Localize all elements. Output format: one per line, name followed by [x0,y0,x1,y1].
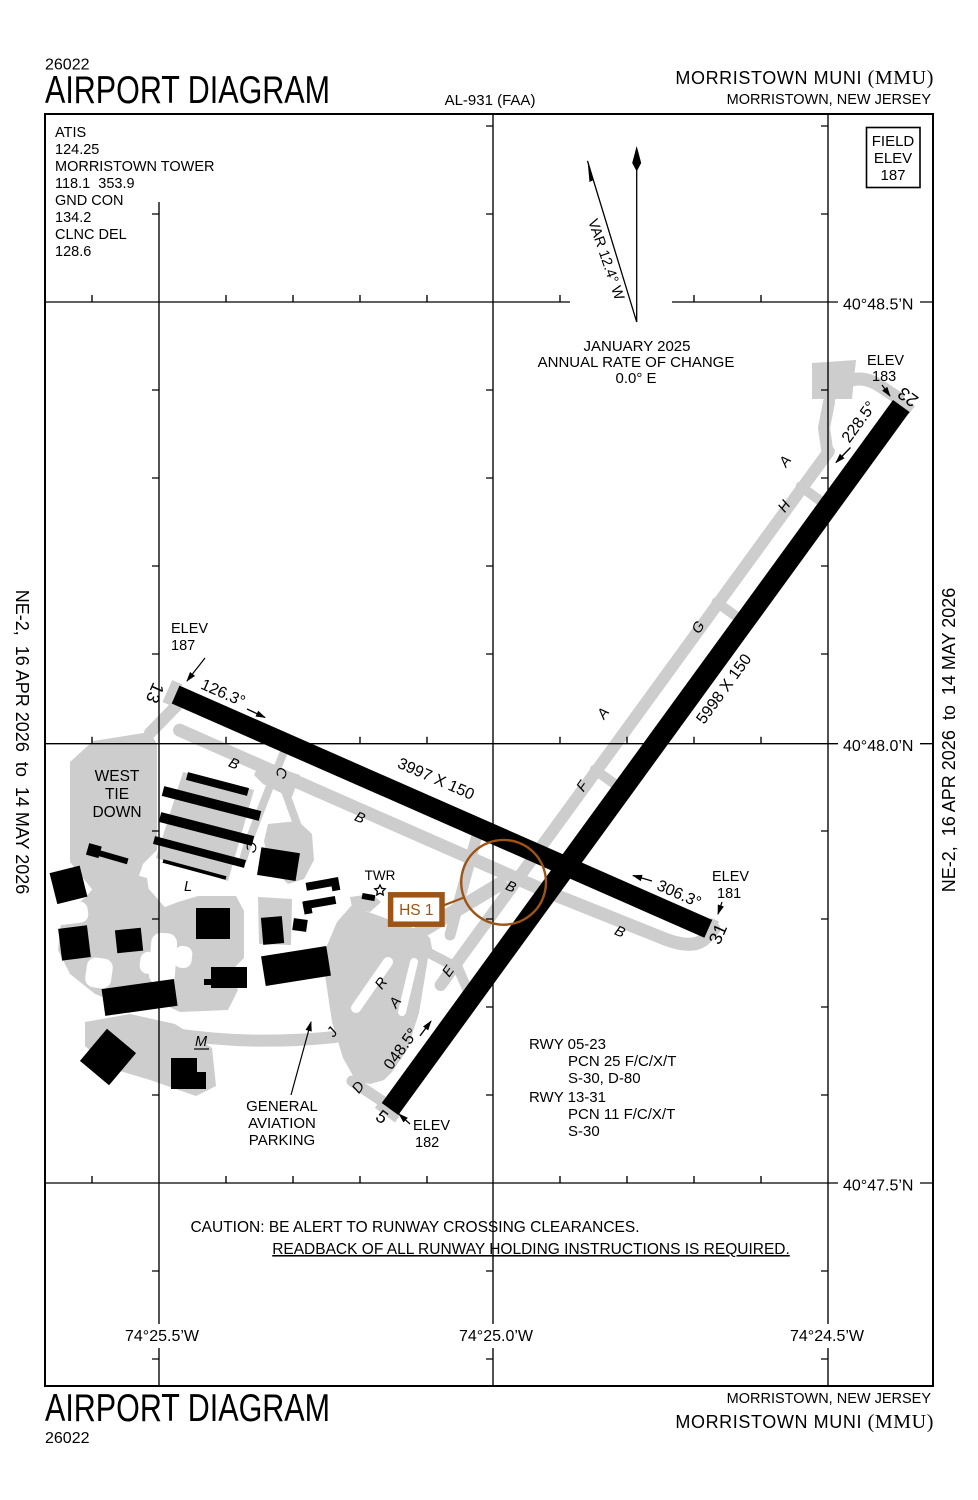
svg-text:S-30, D-80: S-30, D-80 [568,1070,641,1087]
svg-text:MORRISTOWN MUNI (MMU): MORRISTOWN MUNI (MMU) [675,67,934,89]
svg-text:124.25: 124.25 [55,142,99,158]
svg-text:183: 183 [872,369,896,385]
svg-text:118.1 353.9: 118.1 353.9 [55,176,135,192]
svg-text:ANNUAL RATE OF CHANGE: ANNUAL RATE OF CHANGE [538,354,735,371]
svg-text:DOWN: DOWN [92,804,141,821]
svg-text:74°25.5’W: 74°25.5’W [125,1328,200,1345]
svg-text:MORRISTOWN MUNI (MMU): MORRISTOWN MUNI (MMU) [675,1411,934,1433]
svg-text:AVIATION: AVIATION [248,1115,316,1132]
svg-text:PCN 25 F/C/X/T: PCN 25 F/C/X/T [568,1053,676,1070]
svg-text:AIRPORT DIAGRAM: AIRPORT DIAGRAM [45,1387,330,1430]
svg-text:HS 1: HS 1 [399,902,433,919]
svg-text:ELEV: ELEV [874,150,912,167]
svg-text:TIE: TIE [105,786,129,803]
svg-text:AL-931 (FAA): AL-931 (FAA) [445,92,536,109]
svg-text:PCN 11 F/C/X/T: PCN 11 F/C/X/T [568,1106,675,1123]
svg-text:PARKING: PARKING [249,1132,315,1149]
svg-text:RWY 05-23: RWY 05-23 [529,1036,606,1053]
svg-text:CLNC DEL: CLNC DEL [55,227,127,243]
svg-text:MORRISTOWN TOWER: MORRISTOWN TOWER [55,159,215,175]
svg-text:S-30: S-30 [568,1123,600,1140]
svg-text:181: 181 [717,886,741,902]
svg-text:L: L [184,879,192,895]
svg-text:MORRISTOWN, NEW JERSEY: MORRISTOWN, NEW JERSEY [727,1391,932,1407]
svg-text:RWY 13-31: RWY 13-31 [529,1089,606,1106]
svg-text:74°25.0’W: 74°25.0’W [459,1328,534,1345]
svg-text:74°24.5’W: 74°24.5’W [790,1328,865,1345]
svg-text:TWR: TWR [365,868,396,883]
svg-text:187: 187 [880,167,905,184]
svg-text:M: M [195,1034,208,1050]
svg-text:FIELD: FIELD [872,133,915,150]
svg-text:GND CON: GND CON [55,193,123,209]
svg-text:CAUTION: BE ALERT TO RUNWAY CR: CAUTION: BE ALERT TO RUNWAY CROSSING CLE… [190,1219,639,1236]
svg-text:0.0° E: 0.0° E [615,370,656,387]
svg-text:187: 187 [171,638,195,654]
svg-text:ELEV: ELEV [867,353,904,369]
svg-text:26022: 26022 [45,1430,90,1447]
svg-text:MORRISTOWN, NEW JERSEY: MORRISTOWN, NEW JERSEY [727,92,932,108]
svg-text:128.6: 128.6 [55,244,91,260]
svg-text:READBACK OF ALL RUNWAY HOLDING: READBACK OF ALL RUNWAY HOLDING INSTRUCTI… [272,1241,790,1258]
svg-text:JANUARY 2025: JANUARY 2025 [583,338,690,355]
svg-text:40°48.5’N: 40°48.5’N [843,297,913,314]
svg-text:GENERAL: GENERAL [246,1098,318,1115]
svg-text:WEST: WEST [95,768,140,785]
svg-text:40°47.5’N: 40°47.5’N [843,1178,913,1195]
svg-text:ELEV: ELEV [413,1118,450,1134]
svg-text:ATIS: ATIS [55,125,86,141]
svg-text:ELEV: ELEV [712,869,749,885]
svg-text:NE-2, 16 APR 2026 to 14 MAY: NE-2, 16 APR 2026 to 14 MAY 2026 [12,590,32,895]
svg-text:NE-2, 16 APR 2026 to 14 MAY: NE-2, 16 APR 2026 to 14 MAY 2026 [939,588,959,893]
svg-text:182: 182 [415,1135,439,1151]
svg-text:40°48.0’N: 40°48.0’N [843,738,913,755]
svg-text:AIRPORT DIAGRAM: AIRPORT DIAGRAM [45,69,330,112]
svg-text:ELEV: ELEV [171,621,208,637]
svg-text:134.2: 134.2 [55,210,91,226]
